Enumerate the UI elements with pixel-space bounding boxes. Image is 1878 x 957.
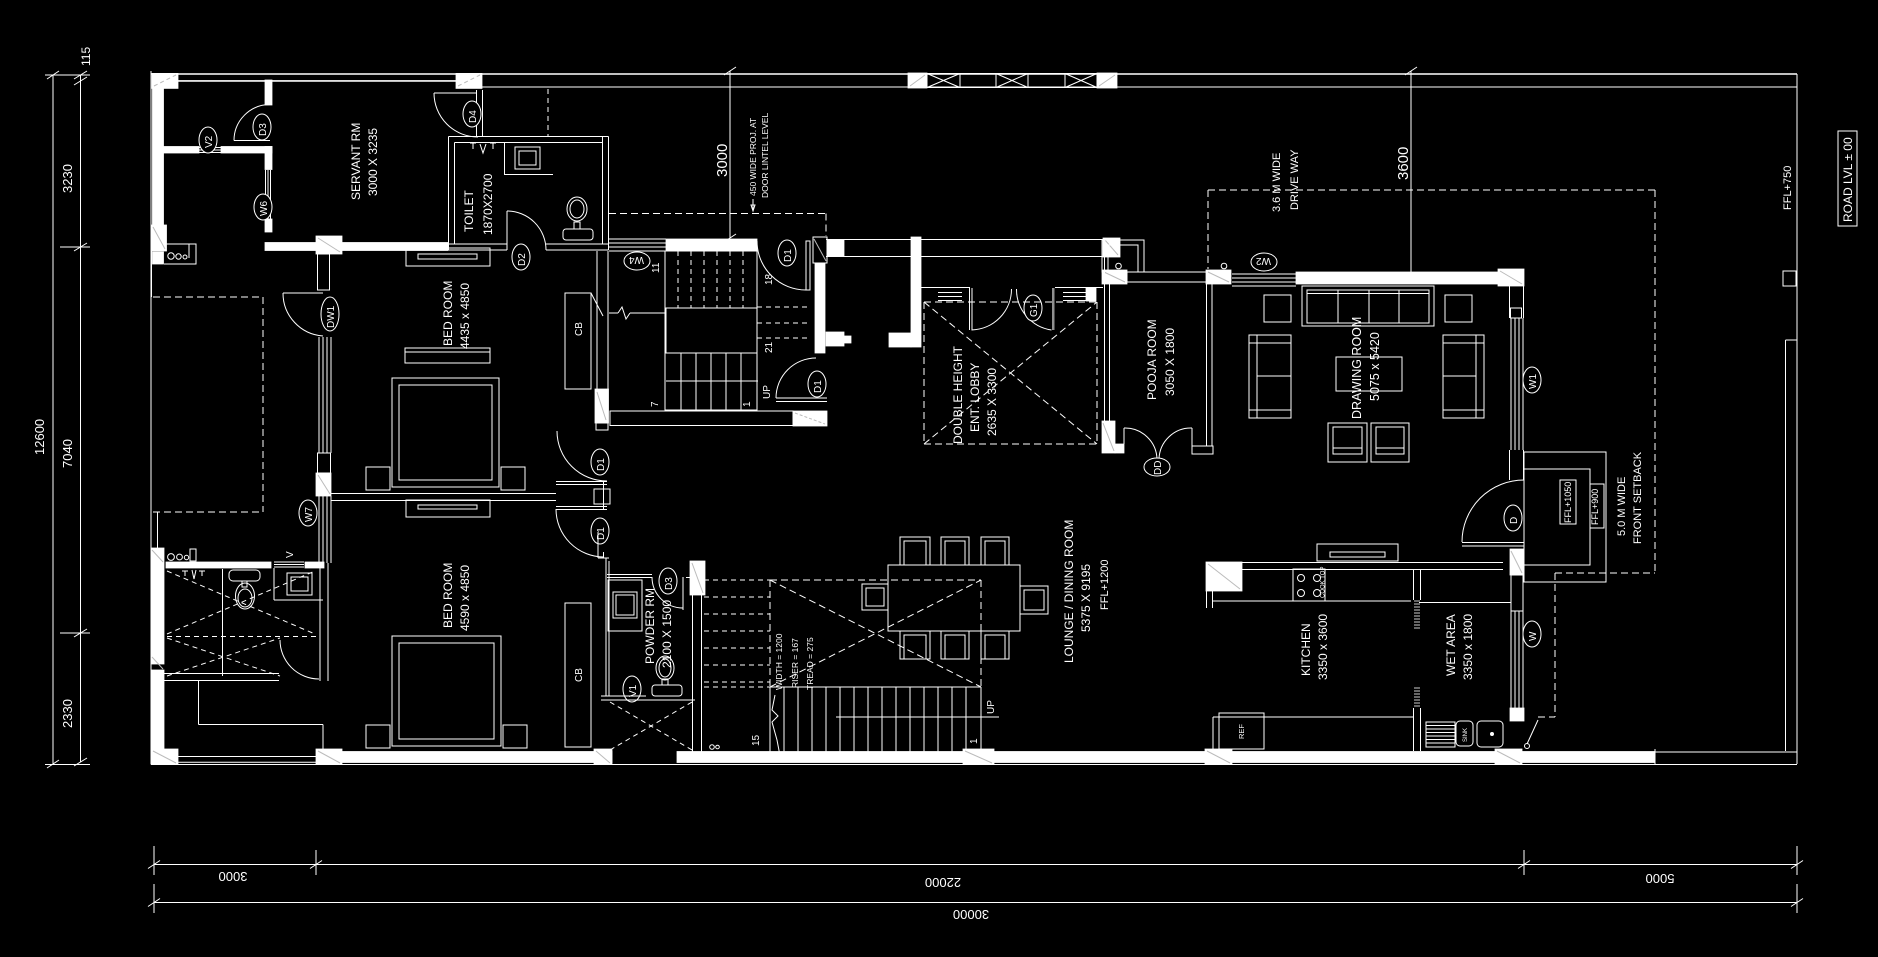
svg-text:BED ROOM: BED ROOM	[441, 281, 455, 346]
svg-text:KITCHEN: KITCHEN	[1299, 623, 1313, 676]
svg-text:D1: D1	[783, 249, 794, 262]
svg-text:22000: 22000	[925, 875, 961, 890]
svg-text:FFL+1200: FFL+1200	[1099, 560, 1111, 610]
svg-text:30000: 30000	[953, 907, 989, 922]
svg-text:3350 x 3600: 3350 x 3600	[1316, 614, 1330, 680]
svg-text:3350 x 1800: 3350 x 1800	[1461, 614, 1475, 680]
svg-text:7040: 7040	[60, 439, 75, 468]
svg-text:3000 X 3235: 3000 X 3235	[366, 128, 380, 196]
svg-text:ENT. LOBBY: ENT. LOBBY	[968, 363, 982, 432]
svg-text:LOUNGE / DINING ROOM: LOUNGE / DINING ROOM	[1062, 520, 1076, 663]
svg-text:12600: 12600	[32, 419, 47, 455]
svg-text:W6: W6	[259, 201, 270, 216]
svg-text:FRONT SETBACK: FRONT SETBACK	[1632, 451, 1644, 544]
svg-text:FFL+900: FFL+900	[1590, 489, 1600, 525]
svg-text:115: 115	[79, 47, 93, 66]
svg-text:FFL+1050: FFL+1050	[1563, 482, 1573, 523]
svg-text:W4: W4	[629, 254, 644, 265]
svg-text:15: 15	[751, 734, 762, 746]
svg-text:DW1: DW1	[326, 305, 337, 328]
svg-text:21: 21	[764, 341, 775, 353]
svg-text:DOUBLE HEIGHT: DOUBLE HEIGHT	[951, 345, 965, 444]
svg-text:2100 X 1500: 2100 X 1500	[660, 600, 674, 668]
svg-text:WET AREA: WET AREA	[1444, 614, 1458, 676]
svg-text:5375 X 9195: 5375 X 9195	[1079, 564, 1093, 632]
svg-text:RISER = 167: RISER = 167	[790, 638, 800, 688]
svg-text:3000: 3000	[219, 869, 248, 884]
svg-text:POOJA ROOM: POOJA ROOM	[1145, 319, 1159, 400]
svg-text:REF: REF	[1237, 724, 1246, 739]
svg-text:450 WIDE PROJ. AT: 450 WIDE PROJ. AT	[748, 118, 758, 196]
svg-text:D3: D3	[664, 577, 675, 590]
svg-text:COOK TOP: COOK TOP	[1321, 567, 1327, 598]
svg-text:D: D	[1509, 517, 1520, 524]
svg-text:ROAD LVL ± 00: ROAD LVL ± 00	[1841, 137, 1855, 222]
svg-text:W7: W7	[304, 507, 315, 522]
svg-text:5075 x 5420: 5075 x 5420	[1368, 332, 1382, 401]
svg-text:SINK: SINK	[1463, 728, 1469, 742]
svg-text:3.6 M WIDE: 3.6 M WIDE	[1271, 153, 1283, 212]
svg-text:1: 1	[742, 401, 753, 407]
svg-text:W: W	[1528, 631, 1539, 641]
svg-text:W2: W2	[1256, 255, 1271, 266]
svg-text:SERVANT RM: SERVANT RM	[349, 123, 363, 200]
svg-text:DOOR LINTEL LEVEL: DOOR LINTEL LEVEL	[760, 113, 770, 198]
svg-text:3000: 3000	[714, 144, 731, 177]
svg-text:4435 x 4850: 4435 x 4850	[458, 283, 472, 349]
svg-text:V: V	[285, 551, 296, 558]
svg-text:18: 18	[764, 273, 775, 285]
svg-text:1870X2700: 1870X2700	[481, 173, 495, 235]
svg-text:DD: DD	[1153, 461, 1164, 475]
svg-text:3230: 3230	[60, 164, 75, 193]
svg-text:DRAWING ROOM: DRAWING ROOM	[1350, 317, 1364, 419]
svg-text:2635 X 3300: 2635 X 3300	[985, 368, 999, 436]
svg-text:TOILET: TOILET	[462, 190, 476, 232]
svg-text:TREAD = 275: TREAD = 275	[805, 637, 815, 690]
svg-text:3050 X 1800: 3050 X 1800	[1163, 328, 1177, 396]
svg-text:V2: V2	[204, 135, 215, 148]
svg-text:CB: CB	[574, 322, 585, 336]
svg-text:D3: D3	[258, 123, 269, 136]
svg-text:UP: UP	[986, 700, 997, 714]
svg-text:D1: D1	[813, 380, 824, 393]
svg-text:V1: V1	[628, 684, 639, 697]
svg-text:D4: D4	[468, 110, 479, 123]
svg-text:1: 1	[969, 738, 980, 744]
svg-text:7: 7	[650, 401, 661, 407]
svg-text:G1: G1	[1029, 303, 1040, 317]
svg-text:DRIVE WAY: DRIVE WAY	[1289, 149, 1301, 210]
svg-text:D2: D2	[517, 253, 528, 266]
svg-text:W1: W1	[1528, 374, 1539, 389]
svg-text:2330: 2330	[60, 699, 75, 728]
svg-text:POWDER RM: POWDER RM	[643, 588, 657, 664]
svg-text:D1: D1	[596, 458, 607, 471]
svg-text:5.0 M WIDE: 5.0 M WIDE	[1616, 477, 1628, 536]
svg-text:3600: 3600	[1395, 147, 1412, 180]
svg-text:CB: CB	[574, 668, 585, 682]
svg-text:4590 x 4850: 4590 x 4850	[458, 565, 472, 631]
svg-text:UP: UP	[762, 385, 773, 399]
svg-text:FFL+750: FFL+750	[1782, 166, 1794, 210]
svg-text:11: 11	[651, 262, 662, 273]
svg-text:BED ROOM: BED ROOM	[441, 563, 455, 628]
svg-text:WIDTH = 1200: WIDTH = 1200	[774, 633, 784, 690]
svg-text:5000: 5000	[1646, 871, 1675, 886]
